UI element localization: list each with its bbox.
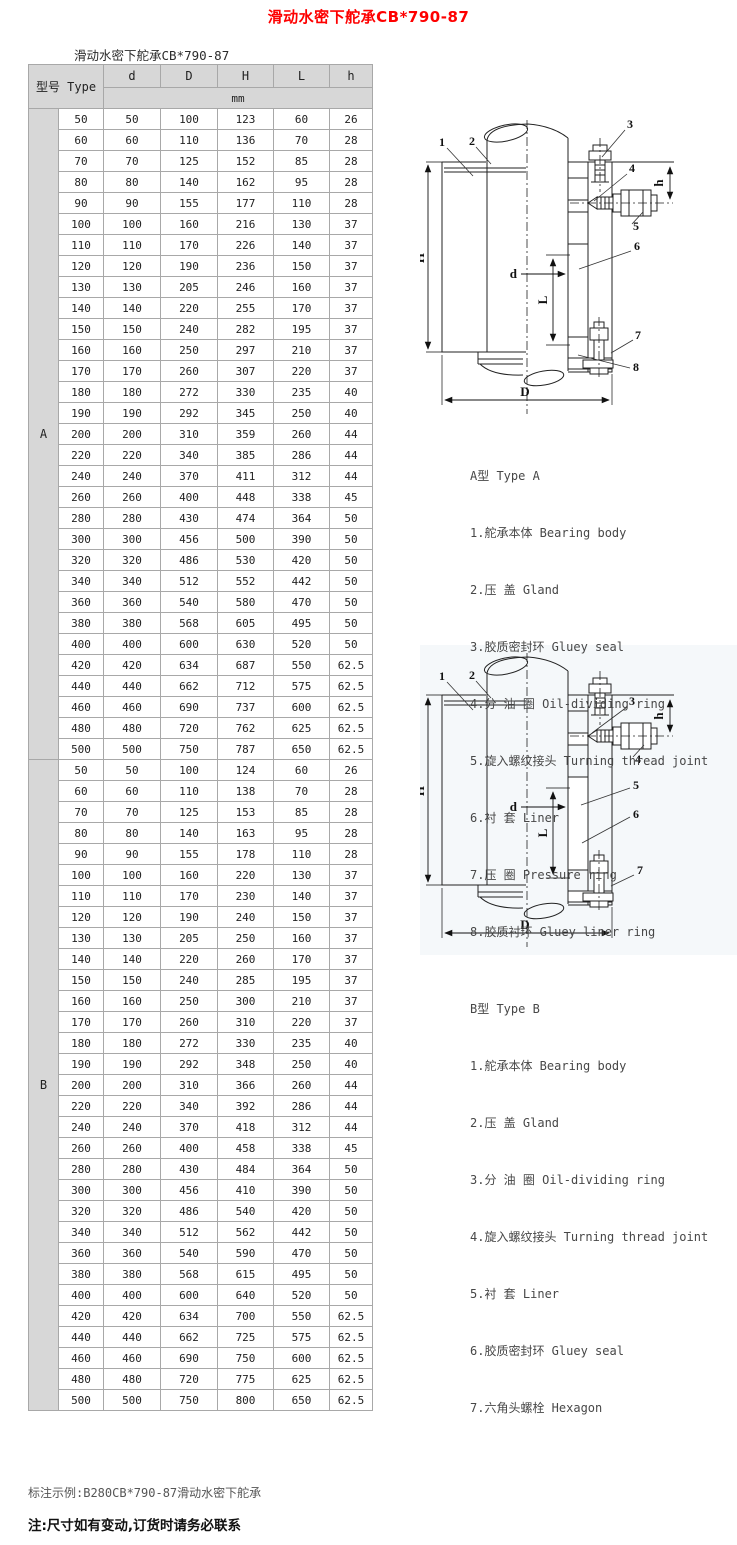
cell: 120: [104, 256, 161, 277]
cell: 160: [104, 991, 161, 1012]
cell: 260: [59, 1138, 104, 1159]
table-row: 19019029234825040: [29, 1054, 373, 1075]
cell: 495: [274, 613, 330, 634]
cell: 456: [161, 1180, 218, 1201]
callout-7: 7: [635, 328, 641, 342]
cell: 360: [104, 592, 161, 613]
cell: 440: [104, 1327, 161, 1348]
cell: 448: [218, 487, 274, 508]
cell: 500: [59, 739, 104, 760]
cell: 110: [104, 235, 161, 256]
table-row: 80801401629528: [29, 172, 373, 193]
cell: 442: [274, 571, 330, 592]
cell: 28: [330, 823, 373, 844]
cell: 150: [59, 319, 104, 340]
table-row: 18018027233023540: [29, 1033, 373, 1054]
cell: 170: [59, 1012, 104, 1033]
cell: 280: [104, 508, 161, 529]
cell: 28: [330, 193, 373, 214]
cell: 140: [274, 886, 330, 907]
cell: 37: [330, 340, 373, 361]
cell: 366: [218, 1075, 274, 1096]
legend-b-title: B型 Type B: [470, 1000, 708, 1019]
cell: 400: [104, 634, 161, 655]
cell: 370: [161, 466, 218, 487]
table-row: 36036054058047050: [29, 592, 373, 613]
legend-item: 4.分 油 圈 Oil-dividing ring: [470, 695, 708, 714]
section-label: A: [29, 109, 59, 760]
cell: 240: [161, 970, 218, 991]
cell: 460: [59, 697, 104, 718]
cell: 662: [161, 1327, 218, 1348]
cell: 712: [218, 676, 274, 697]
callout-1: 1: [439, 669, 445, 683]
table-row: 13013020524616037: [29, 277, 373, 298]
cell: 400: [59, 1285, 104, 1306]
cell: 320: [59, 1201, 104, 1222]
cell: 170: [274, 949, 330, 970]
cell: 220: [218, 865, 274, 886]
cell: 625: [274, 718, 330, 739]
cell: 400: [59, 634, 104, 655]
cell: 272: [161, 1033, 218, 1054]
legend-item: 2.压 盖 Gland: [470, 581, 708, 600]
cell: 124: [218, 760, 274, 781]
cell: 110: [59, 235, 104, 256]
cell: 37: [330, 865, 373, 886]
table-row: 48048072077562562.5: [29, 1369, 373, 1390]
cell: 200: [104, 1075, 161, 1096]
cell: 40: [330, 382, 373, 403]
cell: 460: [104, 1348, 161, 1369]
table-row: A50501001236026: [29, 109, 373, 130]
cell: 50: [330, 550, 373, 571]
cell: 150: [104, 970, 161, 991]
cell: 634: [161, 655, 218, 676]
cell: 700: [218, 1306, 274, 1327]
table-row: 24024037041131244: [29, 466, 373, 487]
cell: 85: [274, 802, 330, 823]
cell: 390: [274, 529, 330, 550]
cell: 50: [330, 1285, 373, 1306]
cell: 210: [274, 991, 330, 1012]
cell: 687: [218, 655, 274, 676]
cell: 246: [218, 277, 274, 298]
cell: 474: [218, 508, 274, 529]
cell: 380: [59, 1264, 104, 1285]
cell: 50: [330, 1159, 373, 1180]
legend-item: 6.衬 套 Liner: [470, 809, 708, 828]
cell: 50: [330, 508, 373, 529]
legend-type-b: B型 Type B 1.舵承本体 Bearing body 2.压 盖 Glan…: [470, 962, 708, 1437]
cell: 28: [330, 151, 373, 172]
cell: 470: [274, 592, 330, 613]
cell: 220: [161, 949, 218, 970]
cell: 123: [218, 109, 274, 130]
table-caption: 滑动水密下舵承CB*790-87: [74, 45, 229, 64]
cell: 418: [218, 1117, 274, 1138]
cell: 180: [59, 382, 104, 403]
cell: 37: [330, 1012, 373, 1033]
cell: 140: [161, 172, 218, 193]
legend-item: 5.衬 套 Liner: [470, 1285, 708, 1304]
cell: 177: [218, 193, 274, 214]
cell: 340: [104, 1222, 161, 1243]
cell: 300: [104, 529, 161, 550]
legend-item: 2.压 盖 Gland: [470, 1114, 708, 1133]
cell: 50: [330, 1201, 373, 1222]
table-row: 10010016022013037: [29, 865, 373, 886]
cell: 580: [218, 592, 274, 613]
cell: 340: [59, 1222, 104, 1243]
cell: 312: [274, 1117, 330, 1138]
cell: 37: [330, 277, 373, 298]
cell: 250: [161, 340, 218, 361]
table-row: 17017026031022037: [29, 1012, 373, 1033]
cell: 80: [104, 172, 161, 193]
cell: 260: [161, 361, 218, 382]
cell: 250: [274, 1054, 330, 1075]
cell: 460: [59, 1348, 104, 1369]
cell: 28: [330, 172, 373, 193]
cell: 240: [59, 1117, 104, 1138]
cell: 44: [330, 1075, 373, 1096]
table-row: 60601101387028: [29, 781, 373, 802]
cell: 272: [161, 382, 218, 403]
cell: 392: [218, 1096, 274, 1117]
cell: 575: [274, 1327, 330, 1348]
cell: 160: [59, 340, 104, 361]
cell: 40: [330, 1033, 373, 1054]
cell: 190: [59, 1054, 104, 1075]
cell: 292: [161, 1054, 218, 1075]
cell: 37: [330, 970, 373, 991]
cell: 40: [330, 403, 373, 424]
cell: 420: [274, 550, 330, 571]
table-row: 20020031036626044: [29, 1075, 373, 1096]
cell: 285: [218, 970, 274, 991]
cell: 300: [59, 1180, 104, 1201]
cell: 400: [104, 1285, 161, 1306]
cell: 140: [59, 298, 104, 319]
cell: 170: [104, 361, 161, 382]
table-row: 909015517711028: [29, 193, 373, 214]
cell: 512: [161, 571, 218, 592]
cell: 160: [161, 214, 218, 235]
cell: 50: [59, 109, 104, 130]
table-row: 12012019024015037: [29, 907, 373, 928]
cell: 220: [274, 1012, 330, 1033]
cell: 430: [161, 1159, 218, 1180]
cell: 37: [330, 991, 373, 1012]
cell: 787: [218, 739, 274, 760]
cell: 60: [59, 130, 104, 151]
cell: 140: [161, 823, 218, 844]
table-row: 80801401639528: [29, 823, 373, 844]
cell: 50: [59, 760, 104, 781]
cell: 255: [218, 298, 274, 319]
cell: 220: [104, 1096, 161, 1117]
cell: 380: [104, 1264, 161, 1285]
cell: 340: [59, 571, 104, 592]
cell: 480: [59, 1369, 104, 1390]
cell: 100: [161, 109, 218, 130]
cell: 130: [274, 865, 330, 886]
cell: 70: [104, 151, 161, 172]
table-row: 40040060064052050: [29, 1285, 373, 1306]
callout-2: 2: [469, 134, 475, 148]
table-row: 12012019023615037: [29, 256, 373, 277]
table-row: 22022034039228644: [29, 1096, 373, 1117]
legend-item: 3.胶质密封环 Gluey seal: [470, 638, 708, 657]
callout-4: 4: [629, 161, 635, 175]
cell: 62.5: [330, 655, 373, 676]
table-row: 10010016021613037: [29, 214, 373, 235]
cell: 240: [104, 1117, 161, 1138]
cell: 50: [330, 571, 373, 592]
legend-item: 5.旋入螺纹接头 Turning thread joint: [470, 752, 708, 771]
cell: 385: [218, 445, 274, 466]
spec-table: 型号 Type d D H L h mm A505010012360266060…: [28, 64, 373, 1411]
cell: 140: [274, 235, 330, 256]
cell: 50: [104, 109, 161, 130]
cell: 120: [59, 907, 104, 928]
table-row: 18018027233023540: [29, 382, 373, 403]
cell: 110: [274, 193, 330, 214]
cell: 240: [218, 907, 274, 928]
cell: 70: [274, 130, 330, 151]
cell: 100: [59, 214, 104, 235]
cell: 460: [104, 697, 161, 718]
cell: 62.5: [330, 1369, 373, 1390]
cell: 100: [161, 760, 218, 781]
cell: 307: [218, 361, 274, 382]
table-row: 36036054059047050: [29, 1243, 373, 1264]
cell: 360: [104, 1243, 161, 1264]
cell: 37: [330, 214, 373, 235]
cell: 140: [59, 949, 104, 970]
legend-type-a: A型 Type A 1.舵承本体 Bearing body 2.压 盖 Glan…: [470, 429, 708, 961]
cell: 750: [218, 1348, 274, 1369]
cell: 500: [218, 529, 274, 550]
cell: 440: [104, 676, 161, 697]
cell: 280: [104, 1159, 161, 1180]
cell: 456: [161, 529, 218, 550]
cell: 634: [161, 1306, 218, 1327]
cell: 90: [104, 193, 161, 214]
cell: 260: [274, 1075, 330, 1096]
cell: 138: [218, 781, 274, 802]
cell: 286: [274, 1096, 330, 1117]
cell: 286: [274, 445, 330, 466]
cell: 430: [161, 508, 218, 529]
cell: 380: [104, 613, 161, 634]
cell: 37: [330, 886, 373, 907]
cell: 292: [161, 403, 218, 424]
cell: 458: [218, 1138, 274, 1159]
cell: 260: [104, 487, 161, 508]
cell: 180: [104, 1033, 161, 1054]
cell: 62.5: [330, 1327, 373, 1348]
cell: 200: [59, 424, 104, 445]
cell: 562: [218, 1222, 274, 1243]
cell: 62.5: [330, 1306, 373, 1327]
cell: 220: [104, 445, 161, 466]
cell: 512: [161, 1222, 218, 1243]
legend-item: 3.分 油 圈 Oil-dividing ring: [470, 1171, 708, 1190]
callout-3: 3: [627, 117, 633, 131]
header-col-L: L: [274, 65, 330, 88]
cell: 600: [161, 634, 218, 655]
cell: 260: [59, 487, 104, 508]
table-row: 44044066271257562.5: [29, 676, 373, 697]
legend-item: 4.旋入螺纹接头 Turning thread joint: [470, 1228, 708, 1247]
page-title: 滑动水密下舵承CB*790-87: [0, 6, 737, 27]
table-row: 17017026030722037: [29, 361, 373, 382]
cell: 690: [161, 697, 218, 718]
legend-item: 1.舵承本体 Bearing body: [470, 524, 708, 543]
spec-table-body: A505010012360266060110136702870701251528…: [29, 109, 373, 1411]
cell: 235: [274, 382, 330, 403]
cell: 300: [59, 529, 104, 550]
table-row: 19019029234525040: [29, 403, 373, 424]
cell: 359: [218, 424, 274, 445]
cell: 338: [274, 487, 330, 508]
cell: 153: [218, 802, 274, 823]
cell: 320: [104, 1201, 161, 1222]
table-row: 30030045650039050: [29, 529, 373, 550]
cell: 170: [104, 1012, 161, 1033]
cell: 160: [274, 277, 330, 298]
cell: 495: [274, 1264, 330, 1285]
header-col-H: H: [218, 65, 274, 88]
cell: 120: [104, 907, 161, 928]
cell: 500: [59, 1390, 104, 1411]
legend-item: 7.六角头螺栓 Hexagon: [470, 1399, 708, 1418]
table-row: 42042063468755062.5: [29, 655, 373, 676]
cell: 520: [274, 634, 330, 655]
cell: 410: [218, 1180, 274, 1201]
cell: 650: [274, 1390, 330, 1411]
cell: 37: [330, 256, 373, 277]
cell: 62.5: [330, 739, 373, 760]
cell: 170: [274, 298, 330, 319]
cell: 37: [330, 949, 373, 970]
cell: 160: [104, 340, 161, 361]
cell: 90: [59, 193, 104, 214]
legend-item: 6.胶质密封环 Gluey seal: [470, 1342, 708, 1361]
cell: 320: [104, 550, 161, 571]
cell: 420: [274, 1201, 330, 1222]
cell: 282: [218, 319, 274, 340]
cell: 70: [104, 802, 161, 823]
cell: 50: [330, 1222, 373, 1243]
cell: 50: [330, 1180, 373, 1201]
cell: 100: [59, 865, 104, 886]
cell: 152: [218, 151, 274, 172]
cell: 250: [218, 928, 274, 949]
cell: 226: [218, 235, 274, 256]
cell: 44: [330, 445, 373, 466]
cell: 775: [218, 1369, 274, 1390]
note-example: 标注示例:B280CB*790-87滑动水密下舵承: [28, 1484, 261, 1501]
cell: 662: [161, 676, 218, 697]
table-row: 20020031035926044: [29, 424, 373, 445]
cell: 70: [59, 802, 104, 823]
cell: 260: [274, 424, 330, 445]
cell: 235: [274, 1033, 330, 1054]
cell: 338: [274, 1138, 330, 1159]
cell: 340: [161, 445, 218, 466]
cell: 240: [161, 319, 218, 340]
cell: 44: [330, 424, 373, 445]
cell: 50: [330, 1264, 373, 1285]
table-row: 40040060063052050: [29, 634, 373, 655]
cell: 45: [330, 1138, 373, 1159]
cell: 550: [274, 655, 330, 676]
cell: 340: [161, 1096, 218, 1117]
cell: 80: [59, 823, 104, 844]
spec-table-header: 型号 Type d D H L h mm: [29, 65, 373, 109]
section-label: B: [29, 760, 59, 1411]
table-row: 48048072076262562.5: [29, 718, 373, 739]
cell: 150: [274, 907, 330, 928]
table-row: 38038056861549550: [29, 1264, 373, 1285]
cell: 300: [218, 991, 274, 1012]
table-row: 60601101367028: [29, 130, 373, 151]
cell: 62.5: [330, 1390, 373, 1411]
cell: 630: [218, 634, 274, 655]
table-row: 14014022026017037: [29, 949, 373, 970]
cell: 50: [330, 529, 373, 550]
cell: 150: [104, 319, 161, 340]
cell: 110: [161, 130, 218, 151]
cell: 600: [274, 1348, 330, 1369]
legend-a-title: A型 Type A: [470, 467, 708, 486]
cell: 590: [218, 1243, 274, 1264]
cell: 615: [218, 1264, 274, 1285]
cell: 480: [104, 718, 161, 739]
table-row: 50050075078765062.5: [29, 739, 373, 760]
cell: 220: [274, 361, 330, 382]
cell: 380: [59, 613, 104, 634]
cell: 37: [330, 907, 373, 928]
cell: 530: [218, 550, 274, 571]
cell: 110: [104, 886, 161, 907]
cell: 26: [330, 109, 373, 130]
cell: 150: [59, 970, 104, 991]
cell: 260: [104, 1138, 161, 1159]
cell: 280: [59, 508, 104, 529]
table-row: 34034051255244250: [29, 571, 373, 592]
cell: 50: [104, 760, 161, 781]
cell: 370: [161, 1117, 218, 1138]
cell: 125: [161, 151, 218, 172]
cell: 210: [274, 340, 330, 361]
table-row: 26026040044833845: [29, 487, 373, 508]
cell: 260: [218, 949, 274, 970]
cell: 250: [161, 991, 218, 1012]
cell: 420: [59, 655, 104, 676]
cell: 50: [330, 613, 373, 634]
cell: 50: [330, 634, 373, 655]
cell: 62.5: [330, 1348, 373, 1369]
cell: 330: [218, 1033, 274, 1054]
cell: 162: [218, 172, 274, 193]
cell: 205: [161, 277, 218, 298]
table-row: 32032048653042050: [29, 550, 373, 571]
cell: 44: [330, 1096, 373, 1117]
